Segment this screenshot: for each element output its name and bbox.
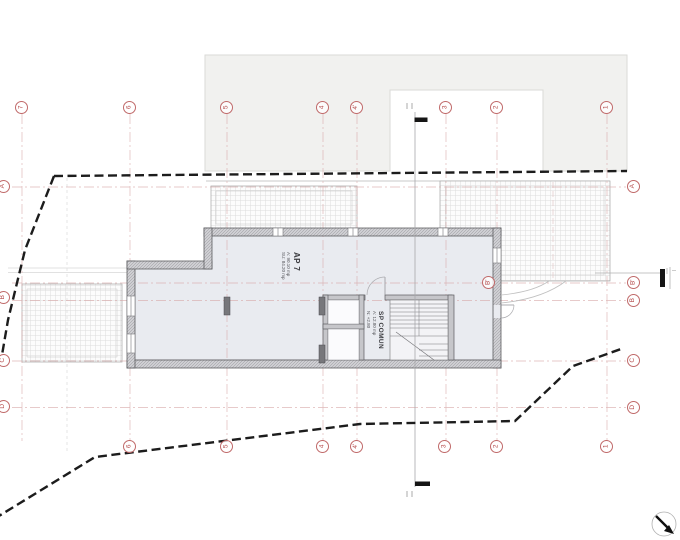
room-name: AP 7 xyxy=(291,252,300,280)
north-arrow-icon xyxy=(652,512,676,536)
grid-bubble-bottom: 3 xyxy=(438,440,451,453)
grid-bubble-label: A xyxy=(630,184,637,188)
grid-bubble-top: 4 xyxy=(316,101,329,114)
grid-bubble-bottom: 4 xyxy=(316,440,329,453)
grid-bubble-right: D xyxy=(627,401,640,414)
grid-bubble-top: 4' xyxy=(350,101,363,114)
grid-bubble-right: B xyxy=(627,294,640,307)
room-name: SP COMUN xyxy=(377,311,384,349)
grid-bubble-top: 1 xyxy=(600,101,613,114)
room-label-ap7: AP 7 A: 90.10 mp SU: 84.20 mp xyxy=(280,252,300,280)
grid-bubble-label: 3 xyxy=(442,106,449,110)
grid-bubble-label: B' xyxy=(630,280,637,286)
grid-bubble-bottom: 2 xyxy=(490,440,503,453)
grid-bubble-top: 3 xyxy=(439,101,452,114)
grid-bubble-label: D xyxy=(0,404,7,409)
plan-drawing xyxy=(0,0,680,540)
grid-bubble-label: C xyxy=(630,358,637,363)
grid-bubble-label: 4 xyxy=(319,445,326,449)
grid-bubble-label: B' xyxy=(485,280,492,286)
grid-bubble-label: 3 xyxy=(441,445,448,449)
grid-bubble-right: A xyxy=(627,180,640,193)
grid-bubble-top: 7 xyxy=(15,101,28,114)
grid-bubble-inline: B' xyxy=(482,276,495,289)
room-area: A: 90.10 mp xyxy=(286,252,292,280)
grid-bubble-label: 1 xyxy=(603,106,610,110)
grid-bubble-label: 2 xyxy=(493,445,500,449)
grid-bubble-label: B xyxy=(630,298,637,302)
grid-bubble-label: D xyxy=(630,405,637,410)
grid-bubble-label: 4' xyxy=(353,105,360,110)
grid-bubble-label: 5 xyxy=(223,106,230,110)
grid-bubble-right: C xyxy=(627,354,640,367)
grid-bubble-label: 6 xyxy=(126,445,133,449)
staircase xyxy=(390,300,448,360)
grid-bubble-bottom: 6 xyxy=(123,440,136,453)
grid-bubble-bottom: 5 xyxy=(220,440,233,453)
driveway-curves xyxy=(501,281,566,303)
grid-bubble-label: 4 xyxy=(319,106,326,110)
grid-bubble-top: 2 xyxy=(490,101,503,114)
grid-bubble-top: 5 xyxy=(220,101,233,114)
grid-bubble-bottom: 1 xyxy=(600,440,613,453)
grid-bubble-label: 5 xyxy=(223,445,230,449)
grid-bubble-label: 4' xyxy=(353,444,360,449)
grid-bubble-label: 7 xyxy=(18,106,25,110)
grid-bubble-label: B xyxy=(0,295,7,299)
room-label-sp-comun: SP COMUN A: 12.80 mp N: +2.80 xyxy=(366,311,384,349)
grid-bubble-label: 2 xyxy=(493,106,500,110)
room-area2: SU: 84.20 mp xyxy=(280,252,286,280)
elevator-shaft xyxy=(328,300,359,360)
grid-bubble-right: B' xyxy=(627,276,640,289)
neighbor-building-footprint xyxy=(205,55,627,171)
grid-bubble-bottom: 4' xyxy=(350,440,363,453)
grid-bubble-label: 1 xyxy=(603,445,610,449)
grid-bubble-label: A xyxy=(0,184,7,188)
grid-bubble-label: 6 xyxy=(126,106,133,110)
grid-bubble-top: 6 xyxy=(123,101,136,114)
grid-bubble-label: C xyxy=(0,358,7,363)
floor-plan-canvas: 7 6 5 4 4' 3 2 1 6 5 4 4' 3 2 1 A B C D … xyxy=(0,0,680,540)
